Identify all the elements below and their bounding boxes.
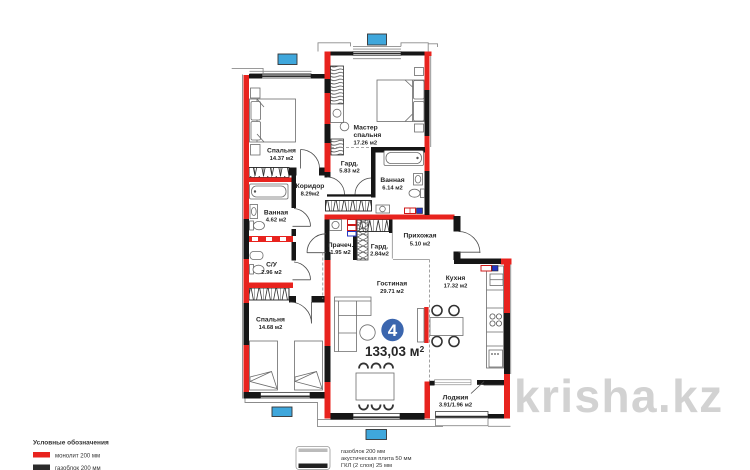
svg-text:8.29м2: 8.29м2 [301, 192, 320, 198]
svg-text:5.83 м2: 5.83 м2 [339, 169, 359, 175]
svg-text:газоблок 200 мм: газоблок 200 мм [55, 466, 101, 470]
svg-text:Кухня: Кухня [446, 275, 466, 282]
svg-text:1.95 м2: 1.95 м2 [330, 250, 350, 256]
svg-text:133,03 м2: 133,03 м2 [365, 344, 425, 359]
svg-text:монолит 200 мм: монолит 200 мм [55, 454, 100, 460]
svg-text:Гард.: Гард. [341, 161, 359, 168]
svg-text:6.14 м2: 6.14 м2 [382, 186, 402, 192]
svg-text:Спальня: Спальня [267, 148, 296, 155]
svg-text:Коридор: Коридор [296, 183, 325, 190]
svg-text:Ванная: Ванная [380, 177, 404, 184]
svg-text:Гостиная: Гостиная [377, 281, 407, 288]
svg-text:Спальня: Спальня [256, 317, 285, 324]
svg-text:2.96 м2: 2.96 м2 [261, 270, 281, 276]
svg-text:4.62 м2: 4.62 м2 [266, 218, 286, 224]
svg-text:Прачеч.: Прачеч. [328, 242, 354, 249]
svg-text:14.68 м2: 14.68 м2 [259, 325, 283, 331]
svg-text:29.71 м2: 29.71 м2 [380, 289, 404, 295]
svg-text:акустическая плита 50 мм: акустическая плита 50 мм [341, 456, 411, 462]
svg-text:14.37 м2: 14.37 м2 [270, 156, 294, 162]
svg-text:Гард.: Гард. [371, 244, 389, 251]
svg-text:газоблок 200 мм: газоблок 200 мм [341, 449, 385, 455]
svg-text:3.91/1.96 м2: 3.91/1.96 м2 [439, 403, 472, 409]
svg-text:Ванная: Ванная [264, 210, 288, 217]
svg-text:2.84м2: 2.84м2 [370, 252, 389, 258]
svg-text:Прихожая: Прихожая [404, 233, 437, 240]
svg-text:17.26 м2: 17.26 м2 [354, 141, 378, 147]
svg-text:5.10 м2: 5.10 м2 [410, 242, 430, 248]
svg-text:Лоджия: Лоджия [443, 395, 469, 402]
svg-text:17.32 м2: 17.32 м2 [444, 284, 468, 290]
svg-text:krisha.kz: krisha.kz [514, 370, 724, 422]
svg-text:Условные обозначения: Условные обозначения [33, 439, 109, 447]
svg-text:ГКЛ (2 слоя) 25 мм: ГКЛ (2 слоя) 25 мм [341, 463, 392, 469]
svg-text:Мастер: Мастер [354, 125, 378, 132]
svg-text:С/У: С/У [266, 262, 278, 269]
svg-text:спальня: спальня [354, 132, 382, 139]
svg-text:4: 4 [388, 321, 398, 340]
